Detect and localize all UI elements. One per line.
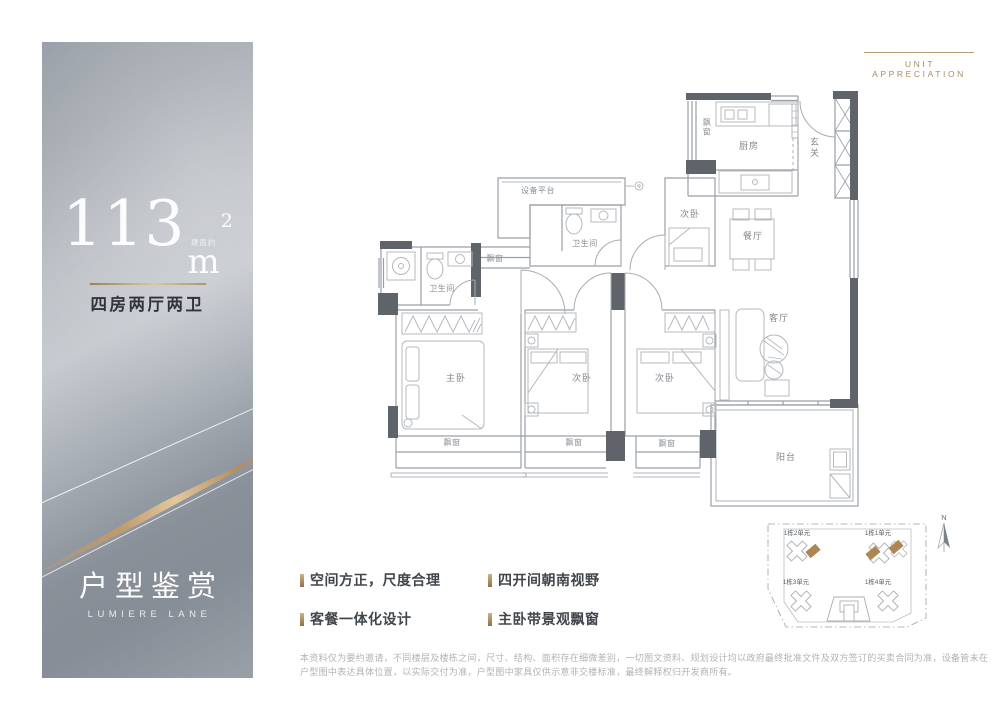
room-label: 飘窗 — [703, 118, 712, 137]
floorplan: 设备平台卫生间卫生间飘窗次卧厨房飘窗玄关餐厅客厅主卧次卧次卧阳台飘窗飘窗飘窗 — [378, 83, 880, 515]
header-rule — [864, 52, 974, 53]
feature-item: 主卧带景观飘窗 — [488, 609, 680, 629]
room-label: 次卧 — [572, 372, 592, 383]
unit-label: 1栋4单元 — [865, 577, 892, 586]
dashed-lines — [793, 138, 798, 173]
bullet-bar-icon — [300, 613, 304, 626]
feature-text: 空间方正，尺度合理 — [310, 570, 441, 590]
section-header: UNIT APPRECIATION — [860, 52, 978, 79]
room-label: 卫生间 — [572, 238, 598, 248]
feature-text: 主卧带景观飘窗 — [498, 609, 600, 629]
brochure-page: 113 建面约 m 2 四房两厅两卫 户型鉴赏 LUMIERE LANE UNI… — [0, 0, 1000, 723]
room-label: 飘窗 — [566, 437, 583, 447]
gold-divider — [90, 283, 206, 285]
feature-item: 客餐一体化设计 — [300, 609, 488, 629]
room-label: 飘窗 — [487, 253, 504, 263]
room-label: 次卧 — [655, 372, 675, 383]
room-label: 客厅 — [769, 312, 789, 323]
feature-item: 空间方正，尺度合理 — [300, 570, 488, 590]
room-label: 厨房 — [739, 140, 759, 151]
area-unit: m — [187, 247, 219, 278]
layout-spec: 四房两厅两卫 — [42, 291, 253, 315]
area-value: 113 — [62, 192, 185, 255]
unit-label: 1栋3单元 — [783, 577, 810, 586]
unit-label: 1栋1单元 — [865, 528, 892, 537]
room-label: 设备平台 — [521, 185, 555, 195]
room-label: 次卧 — [680, 208, 700, 219]
panel-title: 户型鉴赏 — [42, 563, 253, 605]
siteplan: 1栋2单元 1栋1单元 1栋3单元 1栋4单元 N — [760, 510, 960, 647]
highlighted-units — [805, 540, 903, 560]
bullet-bar-icon — [488, 613, 492, 626]
panel-subtitle: LUMIERE LANE — [42, 609, 253, 620]
floorplan-svg: 设备平台卫生间卫生间飘窗次卧厨房飘窗玄关餐厅客厅主卧次卧次卧阳台飘窗飘窗飘窗 — [378, 83, 880, 515]
room-label: 飘窗 — [444, 437, 461, 447]
feature-text: 客餐一体化设计 — [310, 609, 412, 629]
room-label: 卫生间 — [429, 283, 455, 293]
door-arcs — [450, 101, 836, 314]
room-label: 玄关 — [810, 136, 820, 158]
room-label: 主卧 — [446, 372, 466, 383]
feature-item: 四开间朝南视野 — [488, 570, 680, 590]
area-block: 113 建面约 m 2 — [42, 192, 253, 278]
bullet-bar-icon — [300, 574, 304, 587]
room-label: 阳台 — [776, 451, 796, 462]
area-superscript: 2 — [221, 210, 233, 232]
disclaimer-text: 本资料仅为要约邀请，不同楼层及楼栋之间，尺寸、结构、面积存在细微差别，一切图文资… — [300, 651, 992, 679]
feature-text: 四开间朝南视野 — [498, 570, 600, 590]
header-label: UNIT APPRECIATION — [860, 59, 978, 79]
room-label: 餐厅 — [743, 230, 763, 241]
north-label: N — [941, 513, 946, 522]
bullet-bar-icon — [488, 574, 492, 587]
feature-list: 空间方正，尺度合理 四开间朝南视野 客餐一体化设计 主卧带景观飘窗 — [300, 570, 680, 629]
room-label: 飘窗 — [659, 438, 676, 448]
siteplan-svg: 1栋2单元 1栋1单元 1栋3单元 1栋4单元 N — [760, 510, 960, 642]
unit-label: 1栋2单元 — [784, 528, 811, 537]
left-hero-panel: 113 建面约 m 2 四房两厅两卫 户型鉴赏 LUMIERE LANE — [42, 42, 253, 678]
north-arrow-icon: N — [938, 513, 950, 552]
